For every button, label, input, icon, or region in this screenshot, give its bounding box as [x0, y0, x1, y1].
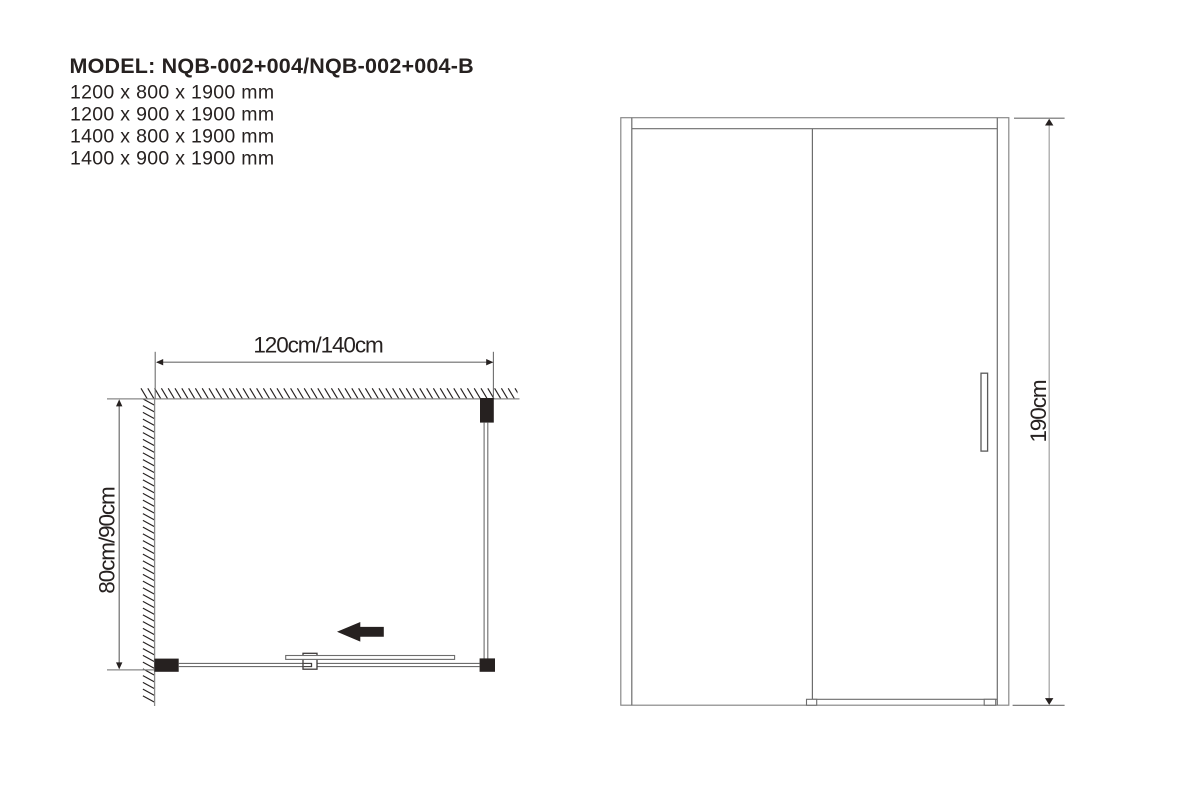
svg-text:1200 x 900 x 1900 mm: 1200 x 900 x 1900 mm — [70, 103, 274, 125]
svg-text:80cm/90cm: 80cm/90cm — [95, 487, 120, 594]
svg-text:120cm/140cm: 120cm/140cm — [253, 333, 383, 358]
svg-text:1200 x 800 x 1900 mm: 1200 x 800 x 1900 mm — [70, 81, 274, 103]
svg-text:1400 x 800 x 1900 mm: 1400 x 800 x 1900 mm — [70, 126, 274, 148]
svg-text:1400 x 900 x 1900 mm: 1400 x 900 x 1900 mm — [70, 148, 274, 170]
svg-text:MODEL: NQB-002+004/NQB-002+004: MODEL: NQB-002+004/NQB-002+004-B — [70, 54, 474, 78]
svg-text:190cm: 190cm — [1026, 380, 1051, 442]
